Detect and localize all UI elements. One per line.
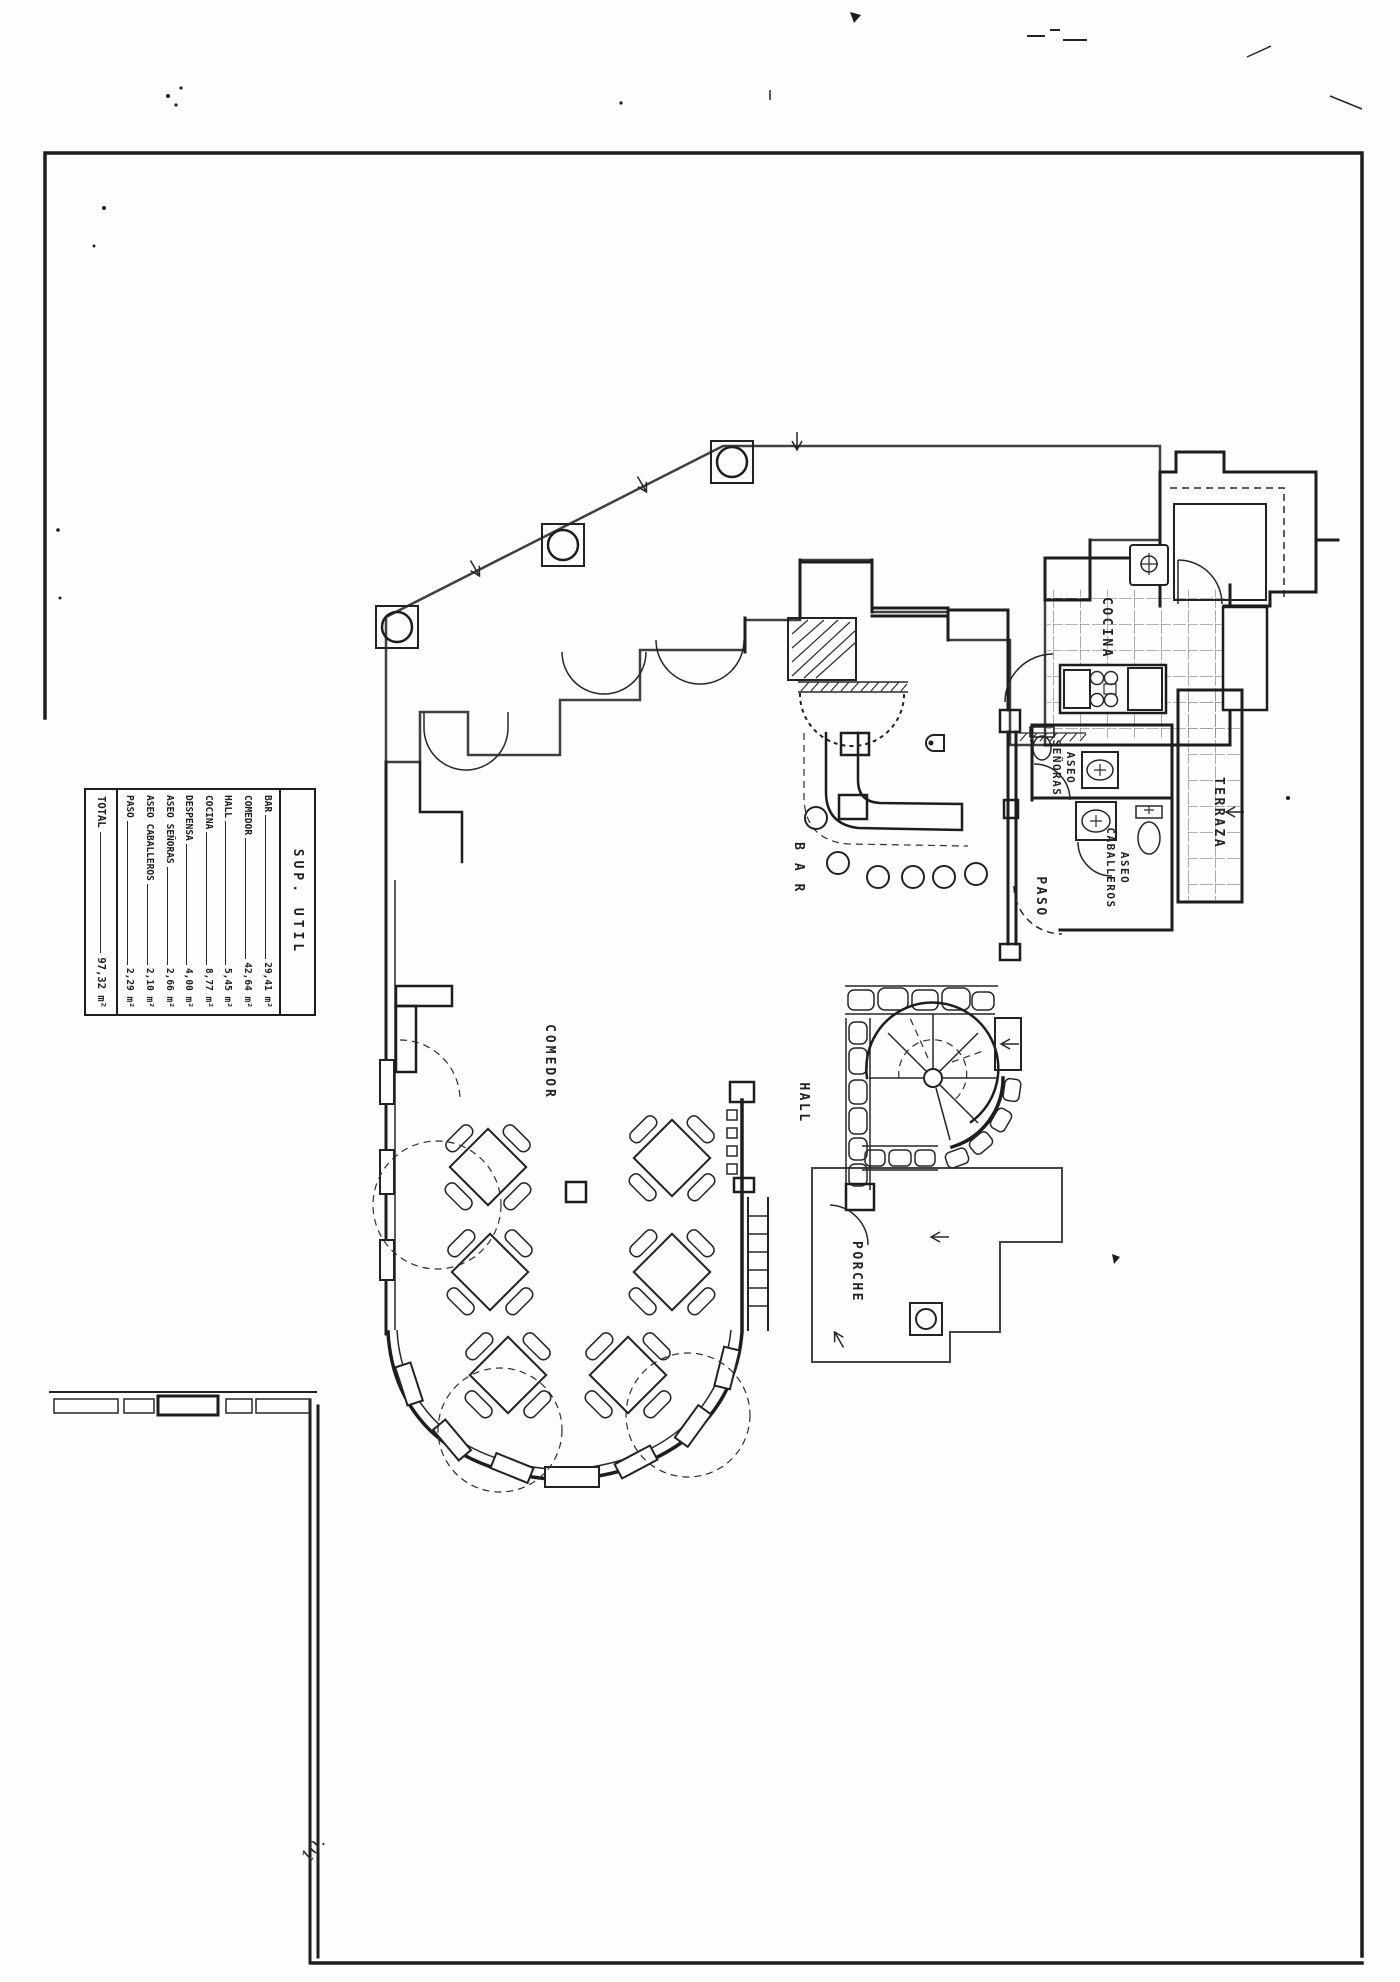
detail-symbol xyxy=(926,735,944,751)
legend-row: PASO2,29 m² xyxy=(124,795,135,1008)
entrance-steps xyxy=(788,618,856,680)
terrace-tiles xyxy=(386,446,1160,762)
appliance-counter xyxy=(1223,607,1267,710)
terrace-columns xyxy=(376,441,753,648)
room-label-bar: B A R xyxy=(790,842,806,894)
room-label-porche: PORCHE xyxy=(848,1241,864,1303)
room-label-paso: PASO xyxy=(1032,876,1048,917)
porch-column xyxy=(910,1303,942,1335)
legend-row: COMEDOR42,64 m² xyxy=(242,795,253,1008)
area-legend: SUP. UTIL BAR29,41 m² COMEDOR42,64 m² HA… xyxy=(84,788,316,1016)
room-label-cocina: COCINA xyxy=(1098,597,1114,659)
dining-tables xyxy=(443,1113,718,1420)
door-swing-dotted xyxy=(800,694,904,746)
legend-title: SUP. UTIL xyxy=(279,790,314,1014)
boundary-wall-band xyxy=(50,1392,316,1415)
window-sill xyxy=(380,1060,740,1487)
legend-row: BAR29,41 m² xyxy=(262,795,273,1008)
kitchen-counter xyxy=(1060,665,1166,713)
room-label-terraza: TERRAZA xyxy=(1210,777,1226,849)
legend-row: HALL5,45 m² xyxy=(222,795,233,1008)
sink-icon xyxy=(1082,752,1118,788)
porch-arrow-icon xyxy=(830,1329,848,1350)
comedor-room xyxy=(373,762,768,1492)
column-icon xyxy=(711,441,753,483)
porch-arrow-icon xyxy=(931,1232,949,1242)
column-square xyxy=(566,1182,586,1202)
scanned-floor-plan-sheet: COMEDOR B A R HALL PORCHE COCINA TERRAZA… xyxy=(0,0,1400,1982)
screen-posts xyxy=(727,1110,737,1174)
area-legend-table: SUP. UTIL BAR29,41 m² COMEDOR42,64 m² HA… xyxy=(84,788,316,1016)
north-walls-and-doors xyxy=(424,560,1008,770)
sheet-border xyxy=(45,153,1362,1963)
hall-and-stair xyxy=(830,986,1021,1245)
dining-table xyxy=(583,1330,674,1420)
legend-total-row: TOTAL 97,32 m² xyxy=(86,790,118,1014)
column-icon xyxy=(376,606,418,648)
toilet-icon xyxy=(1136,806,1162,854)
room-label-hall: HALL xyxy=(795,1082,811,1123)
legend-row: COCINA8,77 m² xyxy=(203,795,214,1008)
water-heater-icon xyxy=(1130,545,1168,585)
bar-stools xyxy=(805,807,987,888)
dining-table xyxy=(443,1122,534,1212)
column-icon xyxy=(542,524,584,566)
room-label-comedor: COMEDOR xyxy=(541,1024,557,1100)
legend-rows: BAR29,41 m² COMEDOR42,64 m² HALL5,45 m² … xyxy=(118,790,279,1014)
legend-row: ASEO SEÑORAS2,66 m² xyxy=(164,795,175,1008)
dining-table xyxy=(463,1330,554,1420)
spiral-staircase xyxy=(866,1003,1021,1170)
step-ladder xyxy=(748,1198,768,1330)
dining-table xyxy=(627,1227,718,1317)
legend-row: DESPENSA4,00 m² xyxy=(183,795,194,1008)
double-door-arc xyxy=(424,640,744,770)
bar-room xyxy=(804,733,987,888)
dining-table xyxy=(627,1113,718,1203)
room-label-aseo-senoras: ASEOSEÑORAS xyxy=(1049,740,1077,797)
door-threshold-hatch xyxy=(798,682,908,746)
legend-row: ASEO CABALLEROS2,10 m² xyxy=(144,795,155,1008)
room-label-aseo-caballeros: ASEOCABALLEROS xyxy=(1103,827,1131,908)
entry-arrow-icon xyxy=(1001,1039,1019,1049)
